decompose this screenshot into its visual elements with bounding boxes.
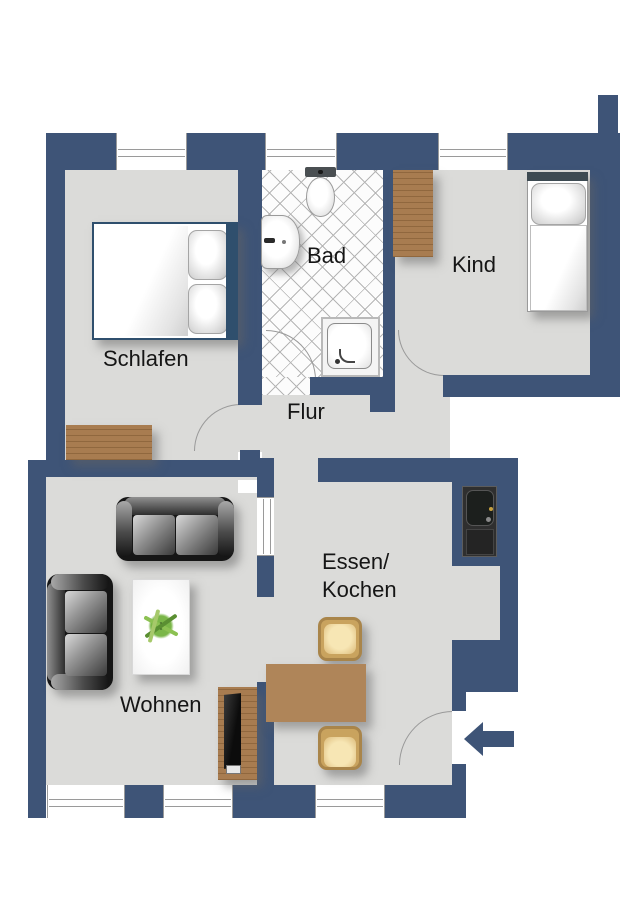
dining-chair-bottom-seat	[324, 737, 356, 767]
plant-icon	[148, 613, 174, 639]
kind-bottom-wall	[443, 375, 620, 397]
sofa-small	[47, 574, 113, 690]
sofa-small-back	[47, 582, 65, 682]
window-bottom-essen	[315, 785, 385, 818]
tv-sideboard	[218, 687, 257, 780]
entrance-arrow-icon	[464, 722, 514, 756]
double-bed-pillow-2	[188, 284, 228, 334]
shower	[321, 317, 380, 377]
bad-bottom-wall	[310, 377, 395, 395]
window-bottom-wohnen-1	[47, 785, 125, 818]
single-bed-headboard	[527, 172, 588, 181]
room-label-essen-line1: Essen/	[322, 548, 397, 576]
kitchen-wall-block-2	[452, 640, 518, 692]
room-label-flur: Flur	[287, 399, 325, 425]
sofa-large	[116, 497, 234, 561]
entrance-arrow-head	[464, 722, 483, 756]
schlafen-bad-wall	[238, 170, 262, 405]
kind-right-wall	[590, 170, 620, 375]
entry-wall-lower	[452, 764, 466, 785]
flur-essen-opening	[274, 458, 318, 482]
single-bed-duvet	[530, 225, 587, 311]
dining-chair-top-seat	[324, 624, 356, 654]
bad-bottom-stub	[370, 395, 395, 412]
kitchen-unit	[462, 486, 497, 557]
entrance-arrow-shaft	[482, 731, 514, 747]
top-right-wall-stub	[598, 95, 618, 135]
room-label-essen-kochen: Essen/ Kochen	[322, 548, 397, 604]
floor-plan: Schlafen Bad Kind Flur Essen/ Kochen Woh…	[0, 0, 640, 908]
bottom-wall-mid-2	[233, 785, 315, 818]
room-label-kind: Kind	[452, 252, 496, 278]
sofa-large-armrest-right	[218, 501, 234, 557]
room-label-wohnen: Wohnen	[120, 692, 202, 718]
double-bed-pillow-1	[188, 230, 228, 280]
schlafen-wohnen-wall	[28, 460, 240, 477]
coffee-table	[132, 579, 190, 675]
double-bed-duvet	[96, 226, 188, 336]
double-bed-headboard	[226, 222, 238, 340]
sofa-large-armrest-left	[116, 501, 132, 557]
top-wall-3	[337, 133, 438, 170]
kitchen-unit-handle	[489, 507, 493, 511]
bottom-wall-right	[385, 785, 466, 818]
left-wall-upper	[46, 170, 65, 460]
shower-drain	[335, 359, 340, 364]
window-top-kind	[438, 133, 508, 170]
toilet-button	[318, 170, 323, 174]
window-interior-wohnen-essen	[257, 497, 274, 556]
sofa-large-seat-1	[133, 515, 175, 555]
dining-chair-top	[318, 617, 362, 661]
bathroom-sink	[261, 215, 300, 269]
wohnen-essen-wall-2	[257, 556, 274, 597]
double-bed	[92, 222, 238, 340]
single-bed-pillow	[531, 183, 586, 225]
kind-wardrobe	[393, 170, 433, 257]
tv-icon	[224, 693, 241, 769]
dining-chair-bottom	[318, 726, 362, 770]
sofa-large-seat-2	[176, 515, 218, 555]
entry-wall-upper	[452, 692, 466, 711]
sofa-small-seat-1	[65, 591, 107, 633]
room-label-essen-line2: Kochen	[322, 576, 397, 604]
sink-faucet	[264, 238, 275, 243]
sofa-small-armrest-bottom	[51, 674, 109, 690]
schlafen-door-threshold	[238, 405, 262, 452]
wohnen-essen-wall-1	[257, 458, 274, 497]
room-label-bad: Bad	[307, 243, 346, 269]
schlafen-desk	[66, 425, 152, 460]
top-wall-2	[187, 133, 265, 170]
top-wall-1	[46, 133, 116, 170]
window-top-bad	[265, 133, 337, 170]
bottom-wall-mid-1	[125, 785, 163, 818]
window-bottom-wohnen-2	[163, 785, 233, 818]
left-wall-lower	[28, 460, 46, 818]
kind-door-threshold	[395, 375, 443, 397]
wohnen-wall-niche	[238, 480, 257, 493]
tv-stand	[226, 765, 241, 774]
sofa-large-back	[124, 497, 226, 515]
sofa-small-armrest-top	[51, 574, 109, 590]
sofa-small-seat-2	[65, 634, 107, 676]
window-top-schlafen	[116, 133, 187, 170]
toilet	[305, 167, 336, 217]
single-bed	[527, 172, 588, 312]
dining-table	[266, 664, 366, 722]
kitchen-unit-lower	[466, 529, 494, 555]
sink-drain	[282, 240, 286, 244]
flur-essen-wall	[318, 458, 452, 482]
room-label-schlafen: Schlafen	[103, 346, 189, 372]
kitchen-sink-drain	[486, 517, 491, 522]
top-wall-4	[508, 133, 620, 170]
toilet-bowl	[306, 177, 335, 217]
kitchen-niche-floor	[452, 566, 500, 640]
